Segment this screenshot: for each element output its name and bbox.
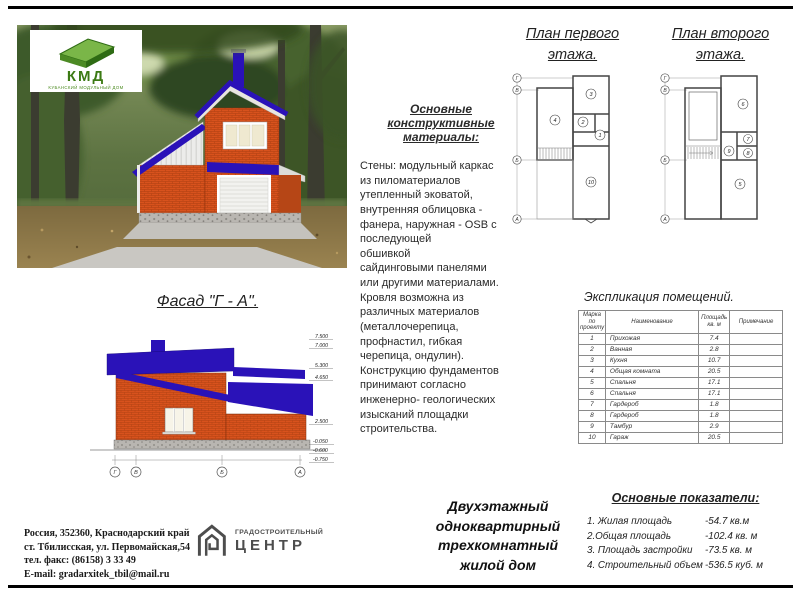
table-row: 6Спальня17.1 xyxy=(579,389,783,400)
gradcenter-line2: ЦЕНТР xyxy=(235,537,323,554)
cell-note xyxy=(730,433,783,444)
cell-area: 1.8 xyxy=(699,411,730,422)
svg-text:-0.600: -0.600 xyxy=(313,448,328,454)
table-row: 9Тамбур2.9 xyxy=(579,422,783,433)
second-floor-plan-title: План второго этажа. xyxy=(648,24,793,66)
left-wing-brick-wall xyxy=(139,165,205,213)
cell-name: Спальня xyxy=(605,389,698,400)
elev-foundation xyxy=(114,440,310,449)
cell-mark: 5 xyxy=(579,378,606,389)
garage-door xyxy=(217,175,271,215)
elev-axis-bubbles xyxy=(110,467,305,477)
materials-body: Стены: модульный каркас из пиломатериало… xyxy=(360,159,522,437)
cell-name: Кухня xyxy=(605,356,698,367)
elev-main-roof xyxy=(107,348,234,375)
cell-mark: 6 xyxy=(579,389,606,400)
cell-name: Гараж xyxy=(605,433,698,444)
svg-text:В: В xyxy=(134,470,138,476)
indicator-label: 1. Жилая площадь xyxy=(587,516,705,527)
first-floor-plan-title: План первого этажа. xyxy=(500,24,645,66)
elev-right-wall xyxy=(226,414,306,440)
cell-mark: 3 xyxy=(579,356,606,367)
address-line: тел. факс: (86158) 3 33 49 xyxy=(24,554,190,568)
indicators-block: Основные показатели: 1. Жилая площадь -5… xyxy=(583,491,788,574)
explication-title: Экспликация помещений. xyxy=(584,290,788,304)
svg-text:2: 2 xyxy=(580,120,584,126)
table-row: 5Спальня17.1 xyxy=(579,378,783,389)
cell-note xyxy=(730,411,783,422)
facade-caption: Фасад "Г - А". xyxy=(100,293,315,311)
svg-text:5.300: 5.300 xyxy=(315,363,328,369)
indicator-value: -73.5 кв. м xyxy=(705,545,752,556)
plan1-porch xyxy=(537,160,573,219)
col-header: Примечание xyxy=(730,311,783,334)
svg-text:А: А xyxy=(662,217,667,223)
plan2-room-bubbles xyxy=(724,99,753,189)
indicator-label: 2.Общая площадь xyxy=(587,531,705,542)
house-description: Двухэтажный одноквартирный трехкомнатный… xyxy=(403,497,593,575)
cell-note xyxy=(730,345,783,356)
indicator-item: 2.Общая площадь -102.4 кв. м xyxy=(587,531,788,542)
elev-window xyxy=(163,408,196,434)
cell-area: 17.1 xyxy=(699,389,730,400)
svg-text:4: 4 xyxy=(553,118,556,124)
col-header: Наименование xyxy=(605,311,698,334)
cell-name: Прихожая xyxy=(605,334,698,345)
explication-table: Марка по проекту Наименование Площадь кв… xyxy=(578,310,783,444)
gradcenter-line1: ГРАДОСТРОИТЕЛЬНЫЙ xyxy=(235,529,323,536)
company-address: Россия, 352360, Краснодарский край ст. Т… xyxy=(24,527,190,581)
indicator-item: 4. Строительный объем -536.5 куб. м xyxy=(587,560,788,571)
materials-title: Основные конструктивные материалы: xyxy=(360,102,522,144)
elev-right-roof-upper xyxy=(233,367,305,379)
cell-mark: 8 xyxy=(579,411,606,422)
cell-note xyxy=(730,334,783,345)
col-header: Марка по проекту xyxy=(579,311,606,334)
elev-axis-labels: Г В Б А xyxy=(114,470,303,476)
table-row: 7Гардероб1.8 xyxy=(579,400,783,411)
indicator-item: 3. Площадь застройки -73.5 кв. м xyxy=(587,545,788,556)
upper-window xyxy=(223,122,267,149)
plan1-axis-lines xyxy=(517,78,573,219)
svg-text:7.500: 7.500 xyxy=(315,334,328,340)
cell-mark: 7 xyxy=(579,400,606,411)
table-row: 1Прихожая7.4 xyxy=(579,334,783,345)
svg-text:-0.750: -0.750 xyxy=(313,457,328,463)
cell-mark: 1 xyxy=(579,334,606,345)
table-row: 3Кухня10.7 xyxy=(579,356,783,367)
kmd-logo: КМД КУБАНСКИЙ МОДУЛЬНЫЙ ДОМ xyxy=(30,30,142,92)
cell-note xyxy=(730,389,783,400)
svg-text:4.650: 4.650 xyxy=(315,375,328,381)
address-line: ст. Тбилисская, ул. Первомайская,54 xyxy=(24,541,190,555)
kmd-roof-icon xyxy=(60,39,114,68)
cell-area: 10.7 xyxy=(699,356,730,367)
plan1-room-bubbles xyxy=(550,89,605,187)
kmd-abbr: КМД xyxy=(67,68,105,85)
indicator-value: -54.7 кв.м xyxy=(705,516,749,527)
plan2-walls xyxy=(685,76,757,219)
cell-area: 2.9 xyxy=(699,422,730,433)
cell-name: Общая комната xyxy=(605,367,698,378)
cell-note xyxy=(730,422,783,433)
cell-area: 20.5 xyxy=(699,433,730,444)
address-line: E-mail: gradarxitek_tbil@mail.ru xyxy=(24,568,190,582)
cell-mark: 2 xyxy=(579,345,606,356)
cell-area: 7.4 xyxy=(699,334,730,345)
cell-area: 1.8 xyxy=(699,400,730,411)
second-floor-plan: План второго этажа. ГВ БА xyxy=(648,24,793,242)
second-floor-plan-drawing: ГВ БА 6 7 9 8 5 xyxy=(651,72,791,237)
slide-bottom-border xyxy=(8,585,793,588)
kmd-subtitle: КУБАНСКИЙ МОДУЛЬНЫЙ ДОМ xyxy=(48,85,123,90)
cell-area: 2.8 xyxy=(699,345,730,356)
cell-note xyxy=(730,400,783,411)
indicator-value: -102.4 кв. м xyxy=(705,531,757,542)
table-row: 2Ванная2.8 xyxy=(579,345,783,356)
stone-foundation xyxy=(139,213,301,223)
svg-text:2.500: 2.500 xyxy=(314,419,328,425)
gradcenter-text: ГРАДОСТРОИТЕЛЬНЫЙ ЦЕНТР xyxy=(235,529,323,554)
elev-dim-line xyxy=(112,455,302,465)
plan2-room-numbers: 6 7 9 8 5 xyxy=(727,102,750,188)
svg-text:А: А xyxy=(514,217,519,223)
svg-text:-0.050: -0.050 xyxy=(313,439,328,445)
cell-name: Гардероб xyxy=(605,400,698,411)
apron xyxy=(123,223,317,239)
plan1-stairs xyxy=(537,148,573,159)
indicator-label: 3. Площадь застройки xyxy=(587,545,705,556)
indicators-title: Основные показатели: xyxy=(583,491,788,505)
svg-text:9: 9 xyxy=(727,149,730,155)
presentation-slide: КМД КУБАНСКИЙ МОДУЛЬНЫЙ ДОМ Фасад "Г - А… xyxy=(0,0,800,600)
plan2-stairs xyxy=(685,146,721,159)
table-row: 10Гараж20.5 xyxy=(579,433,783,444)
slide-top-border xyxy=(8,6,793,9)
svg-text:А: А xyxy=(297,470,302,476)
first-floor-plan: План первого этажа. ГВ БА xyxy=(500,24,645,242)
kmd-logo-graphic: КМД КУБАНСКИЙ МОДУЛЬНЫЙ ДОМ xyxy=(30,30,142,92)
cell-area: 17.1 xyxy=(699,378,730,389)
side-wall xyxy=(279,175,301,213)
svg-text:Б: Б xyxy=(220,470,224,476)
house-icon xyxy=(196,524,230,558)
cell-name: Гардероб xyxy=(605,411,698,422)
indicator-value: -536.5 куб. м xyxy=(705,560,763,571)
cell-note xyxy=(730,367,783,378)
elevation-drawing: Г В Б А 7.500 7.000 5.300 4.650 2.500 -0… xyxy=(88,328,338,480)
elev-right-roof-lower xyxy=(228,382,313,416)
cell-name: Ванная xyxy=(605,345,698,356)
table-header-row: Марка по проекту Наименование Площадь кв… xyxy=(579,311,783,334)
plan1-room-numbers: 3 4 2 1 10 xyxy=(553,92,601,186)
svg-text:1: 1 xyxy=(598,133,601,139)
cell-note xyxy=(730,356,783,367)
svg-text:10: 10 xyxy=(587,180,594,186)
table-row: 8Гардероб1.8 xyxy=(579,411,783,422)
svg-text:7.000: 7.000 xyxy=(315,343,328,349)
indicator-label: 4. Строительный объем xyxy=(587,560,705,571)
cell-mark: 9 xyxy=(579,422,606,433)
address-line: Россия, 352360, Краснодарский край xyxy=(24,527,190,541)
materials-block: Основные конструктивные материалы: Стены… xyxy=(360,102,522,437)
col-header: Площадь кв. м xyxy=(699,311,730,334)
cell-name: Тамбур xyxy=(605,422,698,433)
plan2-axis-lines xyxy=(665,78,721,219)
table-row: 4Общая комната20.5 xyxy=(579,367,783,378)
first-floor-plan-drawing: ГВ БА 3 4 2 1 10 xyxy=(503,72,643,237)
cell-area: 20.5 xyxy=(699,367,730,378)
cell-name: Спальня xyxy=(605,378,698,389)
gradcenter-logo: ГРАДОСТРОИТЕЛЬНЫЙ ЦЕНТР xyxy=(196,524,323,558)
plan2-inner-room xyxy=(689,92,717,140)
cell-note xyxy=(730,378,783,389)
explication-block: Экспликация помещений. Марка по проекту … xyxy=(578,290,788,444)
indicator-item: 1. Жилая площадь -54.7 кв.м xyxy=(587,516,788,527)
cell-mark: 4 xyxy=(579,367,606,378)
cell-mark: 10 xyxy=(579,433,606,444)
